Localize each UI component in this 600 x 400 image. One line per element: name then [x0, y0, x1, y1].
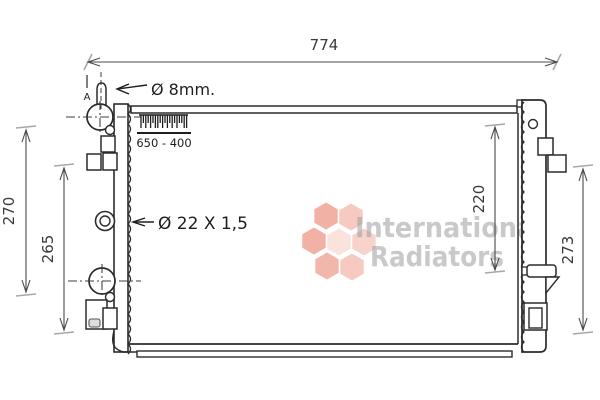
dim-right-outer-273: 273 — [559, 165, 593, 334]
dim-width-774: 774 — [84, 36, 561, 70]
extension-tick — [573, 332, 593, 334]
pipe-size-annotation: Ø 22 X 1,5 — [133, 214, 248, 234]
dim-left-outer-label: 270 — [0, 197, 18, 226]
extension-tick — [573, 165, 593, 167]
logo-hexagon — [327, 229, 350, 256]
dim-right-inner-label: 220 — [470, 185, 488, 214]
leader-arrowhead — [117, 84, 129, 94]
small-hole — [106, 126, 115, 135]
logo-hexagon — [315, 253, 338, 280]
dim-width-label: 774 — [310, 36, 339, 54]
right-tank — [517, 100, 566, 352]
right-upper-bracket — [538, 138, 553, 155]
dim-right-outer-label: 273 — [559, 236, 577, 265]
extension-tick — [54, 164, 74, 166]
dim-left-outer-270: 270 — [0, 126, 36, 296]
extension-tick — [16, 126, 36, 128]
small-hole — [529, 120, 538, 129]
left-fitting-block — [101, 136, 115, 152]
right-mid-bracket-bar — [527, 265, 556, 277]
left-fitting-block — [103, 308, 117, 329]
bracket-pad — [89, 319, 100, 327]
logo-hexagon — [340, 254, 363, 281]
bleed-valve-label: Ø 8mm. — [151, 80, 215, 99]
left-fitting-block — [87, 154, 101, 170]
core-top-band — [131, 106, 517, 113]
core-size-scale: 650 - 400 — [136, 115, 191, 150]
dim-left-inner-265: 265 — [39, 164, 74, 334]
core-size-label: 650 - 400 — [136, 136, 191, 150]
pipe-connection-inner — [100, 216, 110, 226]
scale-bars — [141, 115, 187, 128]
extension-tick — [16, 294, 36, 296]
left-fitting-block — [103, 153, 117, 170]
technical-drawing-canvas: International Radiators — [0, 0, 600, 400]
right-lower-fitting-inner — [529, 308, 542, 328]
right-upper-bracket-ear — [548, 155, 566, 172]
dim-left-inner-label: 265 — [39, 235, 57, 264]
core-bottom-strip — [137, 351, 512, 357]
radiator-drawing: International Radiators — [0, 0, 600, 400]
logo-hexagon — [314, 203, 337, 230]
watermark-text: International Radiators — [355, 211, 543, 273]
left-tank — [66, 72, 141, 354]
extension-tick — [54, 332, 74, 334]
right-mid-bracket-gusset — [546, 277, 559, 293]
section-marker-label: A — [84, 92, 91, 103]
watermark-line2: Radiators — [370, 240, 504, 273]
pipe-size-label: Ø 22 X 1,5 — [158, 214, 248, 234]
logo-hexagon — [302, 228, 325, 255]
